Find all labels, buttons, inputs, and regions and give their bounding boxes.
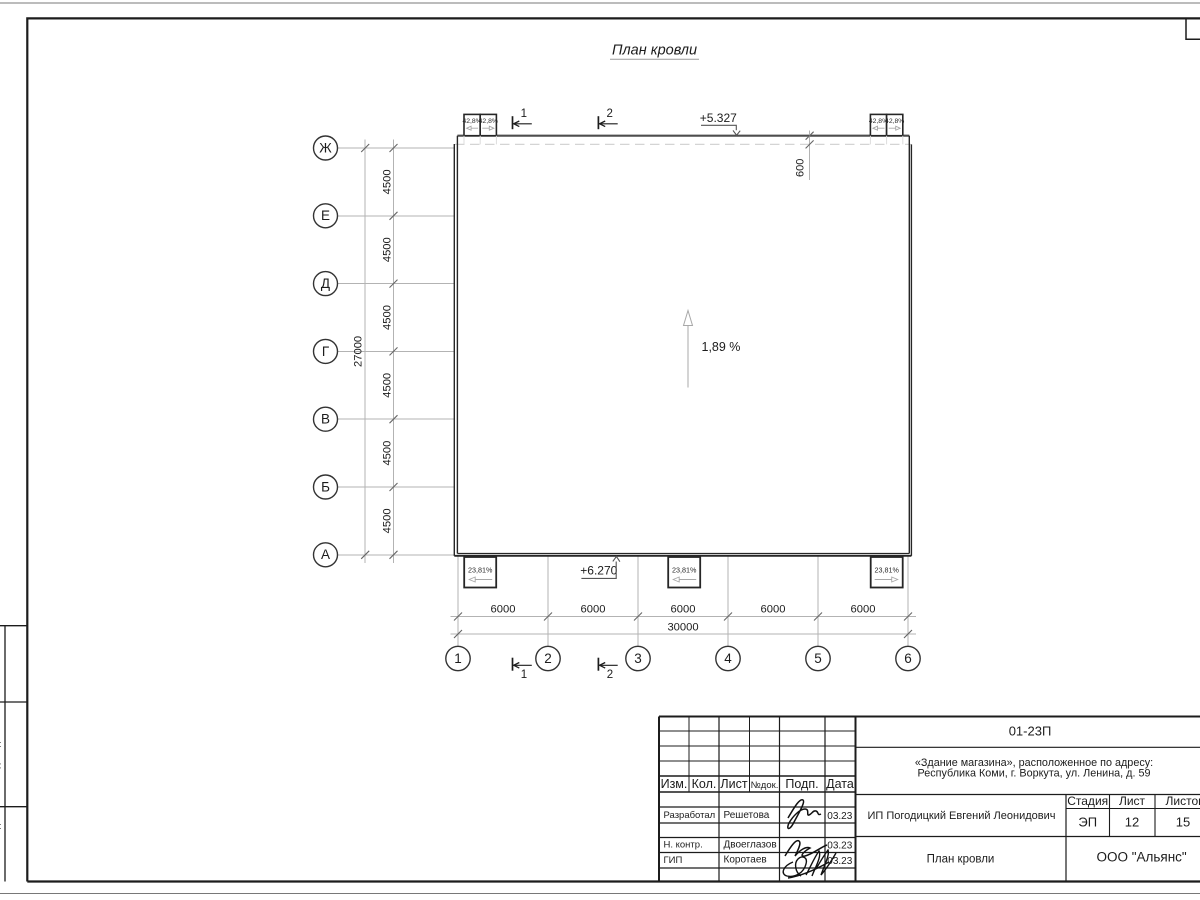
svg-text:В: В xyxy=(321,412,330,427)
svg-text:Г: Г xyxy=(322,344,330,359)
svg-text:Д: Д xyxy=(321,276,330,291)
svg-text:Подп.: Подп. xyxy=(785,777,818,791)
svg-text:Коротаев: Коротаев xyxy=(724,855,767,866)
svg-text:4500: 4500 xyxy=(382,441,394,466)
svg-text:23,81%: 23,81% xyxy=(875,565,900,574)
svg-text:Республика Коми, г. Воркута, у: Республика Коми, г. Воркута, ул. Ленина,… xyxy=(918,768,1151,780)
svg-text:ООО "Альянс": ООО "Альянс" xyxy=(1096,850,1186,865)
svg-text:Решетова: Решетова xyxy=(724,810,770,821)
svg-text:Изм.: Изм. xyxy=(661,777,688,791)
svg-text:6000: 6000 xyxy=(851,603,876,615)
svg-text:6000: 6000 xyxy=(671,603,696,615)
svg-text:6000: 6000 xyxy=(581,603,606,615)
svg-text:1: 1 xyxy=(521,108,527,120)
svg-text:Разработал: Разработал xyxy=(664,810,716,821)
svg-text:6000: 6000 xyxy=(761,603,786,615)
svg-text:2: 2 xyxy=(606,108,612,120)
svg-text:Взам. инв. №: Взам. инв. № xyxy=(0,638,1,691)
svg-text:4500: 4500 xyxy=(382,169,394,194)
svg-text:03.23: 03.23 xyxy=(827,840,852,851)
svg-text:3: 3 xyxy=(634,651,642,666)
svg-text:4500: 4500 xyxy=(382,508,394,533)
svg-text:03.23: 03.23 xyxy=(827,811,852,822)
svg-text:План кровли: План кровли xyxy=(927,854,995,866)
svg-text:12: 12 xyxy=(1125,814,1139,829)
svg-text:Б: Б xyxy=(321,479,330,494)
svg-text:Двоеглазов: Двоеглазов xyxy=(724,839,777,850)
svg-text:ГИП: ГИП xyxy=(664,855,683,866)
svg-text:4500: 4500 xyxy=(382,237,394,262)
svg-text:15: 15 xyxy=(1176,814,1190,829)
svg-text:1: 1 xyxy=(521,669,527,681)
svg-text:30000: 30000 xyxy=(667,621,698,633)
svg-text:+5.327: +5.327 xyxy=(700,111,737,125)
svg-text:1,89 %: 1,89 % xyxy=(702,340,741,354)
svg-text:Дата: Дата xyxy=(826,777,854,791)
svg-text:2: 2 xyxy=(544,651,552,666)
svg-text:План кровли: План кровли xyxy=(612,42,697,58)
svg-text:Кол.: Кол. xyxy=(692,777,717,791)
svg-text:6: 6 xyxy=(904,651,912,666)
svg-text:ЭП: ЭП xyxy=(1078,814,1097,829)
svg-text:Е: Е xyxy=(321,208,330,223)
svg-text:Листов: Листов xyxy=(1166,794,1200,808)
svg-text:6000: 6000 xyxy=(491,603,516,615)
svg-text:42,8%: 42,8% xyxy=(479,118,498,125)
svg-text:Лист: Лист xyxy=(720,777,747,791)
svg-text:№док.: №док. xyxy=(751,780,779,791)
svg-text:ИП Погодицкий Евгений Леонидов: ИП Погодицкий Евгений Леонидович xyxy=(868,810,1056,822)
svg-text:5: 5 xyxy=(814,651,822,666)
svg-text:Ж: Ж xyxy=(319,140,332,155)
svg-text:23,81%: 23,81% xyxy=(468,565,493,574)
svg-text:27000: 27000 xyxy=(353,336,365,367)
svg-text:4500: 4500 xyxy=(382,373,394,398)
svg-text:01-23П: 01-23П xyxy=(1009,724,1052,739)
svg-text:2: 2 xyxy=(607,669,613,681)
svg-text:Инв. № подл.: Инв. № подл. xyxy=(0,817,1,870)
svg-text:4: 4 xyxy=(724,651,732,666)
svg-text:Стадия: Стадия xyxy=(1067,794,1108,808)
svg-text:+6.270: +6.270 xyxy=(580,563,617,577)
svg-text:Лист: Лист xyxy=(1119,794,1146,808)
svg-text:Подп. и дата: Подп. и дата xyxy=(0,729,1,779)
svg-text:23,81%: 23,81% xyxy=(672,565,697,574)
svg-text:600: 600 xyxy=(795,159,807,177)
svg-text:42,8%: 42,8% xyxy=(885,118,904,125)
svg-text:А: А xyxy=(321,547,330,562)
svg-text:1: 1 xyxy=(454,651,462,666)
svg-text:4500: 4500 xyxy=(382,305,394,330)
svg-text:Н. контр.: Н. контр. xyxy=(664,840,703,851)
